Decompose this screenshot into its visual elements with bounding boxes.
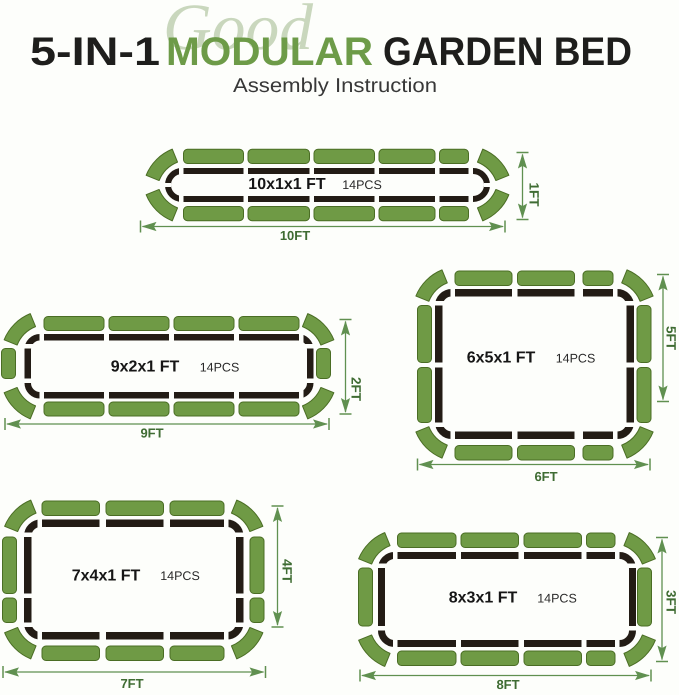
svg-text:14PCS: 14PCS — [556, 351, 596, 365]
svg-text:7x4x1 FT: 7x4x1 FT — [72, 567, 141, 584]
svg-text:9x2x1 FT: 9x2x1 FT — [111, 359, 180, 376]
svg-text:14PCS: 14PCS — [160, 569, 200, 583]
svg-text:14PCS: 14PCS — [342, 178, 382, 192]
svg-text:GARDEN BED: GARDEN BED — [383, 30, 632, 74]
svg-text:3FT: 3FT — [664, 590, 679, 615]
svg-text:5FT: 5FT — [664, 326, 679, 351]
svg-text:MODULAR: MODULAR — [166, 30, 373, 74]
svg-text:10x1x1 FT: 10x1x1 FT — [248, 176, 326, 193]
svg-text:14PCS: 14PCS — [200, 360, 240, 374]
svg-text:4FT: 4FT — [280, 559, 295, 584]
svg-text:8x3x1 FT: 8x3x1 FT — [449, 590, 518, 607]
svg-text:6x5x1 FT: 6x5x1 FT — [467, 350, 536, 367]
svg-text:5-IN-1: 5-IN-1 — [30, 30, 160, 74]
svg-text:9FT: 9FT — [140, 426, 163, 441]
svg-text:1FT: 1FT — [527, 182, 542, 207]
svg-text:2FT: 2FT — [349, 377, 364, 402]
svg-text:7FT: 7FT — [120, 676, 143, 690]
svg-text:6FT: 6FT — [534, 469, 557, 484]
svg-text:8FT: 8FT — [496, 677, 519, 690]
svg-text:14PCS: 14PCS — [537, 591, 577, 605]
svg-text:Assembly Instruction: Assembly Instruction — [233, 75, 437, 97]
svg-text:10FT: 10FT — [280, 228, 310, 243]
